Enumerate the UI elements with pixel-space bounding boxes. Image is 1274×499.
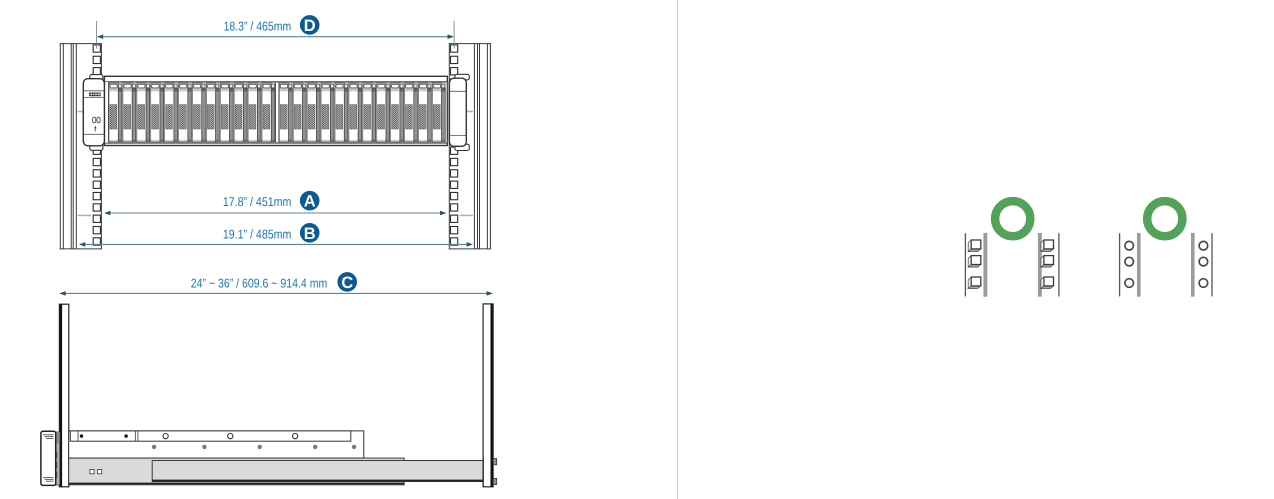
svg-text:D: D	[304, 17, 316, 35]
svg-text:18.3” / 465mm: 18.3” / 465mm	[224, 19, 292, 34]
svg-text:19.1” / 485mm: 19.1” / 485mm	[223, 226, 292, 241]
svg-text:B: B	[304, 225, 316, 243]
svg-text:A: A	[304, 193, 316, 211]
svg-text:C: C	[341, 274, 353, 292]
svg-text:24” ~ 36” / 609.6 ~ 914.4 mm: 24” ~ 36” / 609.6 ~ 914.4 mm	[191, 276, 328, 291]
svg-text:17.8” / 451mm: 17.8” / 451mm	[223, 194, 292, 209]
